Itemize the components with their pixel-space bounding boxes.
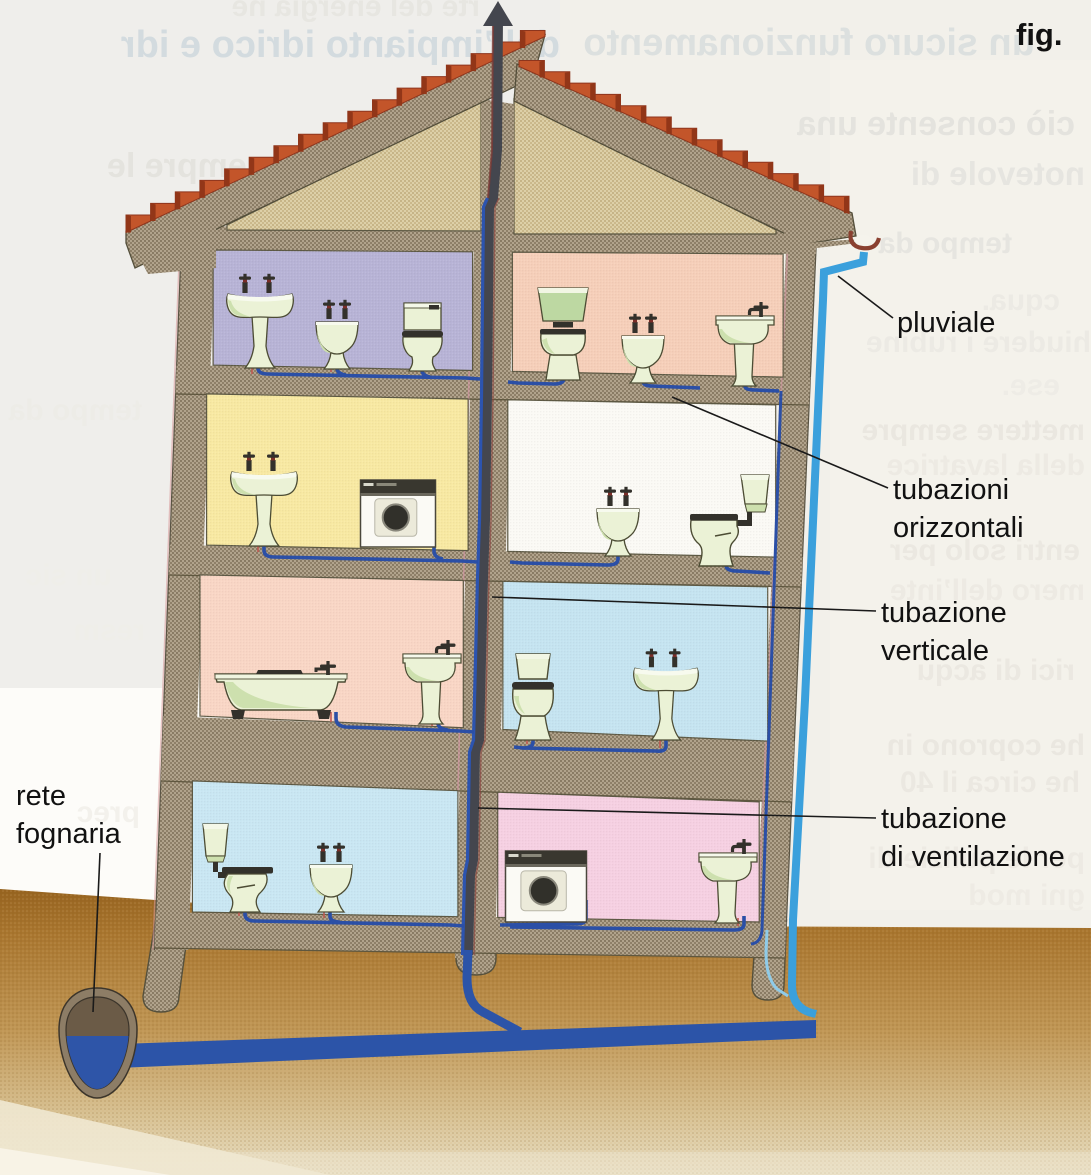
svg-text:notevole di: notevole di bbox=[911, 155, 1085, 192]
svg-text:orizzontali: orizzontali bbox=[893, 512, 1024, 544]
svg-text:tempo da: tempo da bbox=[8, 394, 142, 427]
svg-text:tubazione: tubazione bbox=[881, 803, 1007, 835]
svg-text:fognaria: fognaria bbox=[16, 818, 122, 850]
svg-text:gni mod: gni mod bbox=[968, 879, 1085, 912]
svg-text:rte del energia ne: rte del energia ne bbox=[232, 0, 480, 23]
svg-text:fig.: fig. bbox=[1016, 17, 1063, 52]
svg-text:tempo da: tempo da bbox=[878, 227, 1012, 260]
svg-text:he circa il 40: he circa il 40 bbox=[900, 766, 1080, 799]
svg-text:verticale: verticale bbox=[881, 635, 989, 667]
svg-text:ese.: ese. bbox=[1002, 369, 1060, 402]
svg-text:un sicuro funzionamento: un sicuro funzionamento bbox=[583, 22, 1035, 64]
svg-text:un sic: un sic bbox=[25, 559, 112, 592]
svg-text:he coprono in: he coprono in bbox=[887, 729, 1085, 762]
svg-text:ciò consente una: ciò consente una bbox=[796, 105, 1075, 143]
svg-text:tubazioni: tubazioni bbox=[893, 474, 1009, 506]
svg-text:pluviale: pluviale bbox=[897, 307, 995, 339]
svg-text:di ventilazione: di ventilazione bbox=[881, 841, 1065, 873]
svg-text:mettere sempre: mettere sempre bbox=[862, 414, 1085, 447]
svg-text:rete: rete bbox=[16, 780, 66, 812]
svg-text:resm: resm bbox=[73, 614, 145, 647]
svg-text:tubazione: tubazione bbox=[881, 597, 1007, 629]
